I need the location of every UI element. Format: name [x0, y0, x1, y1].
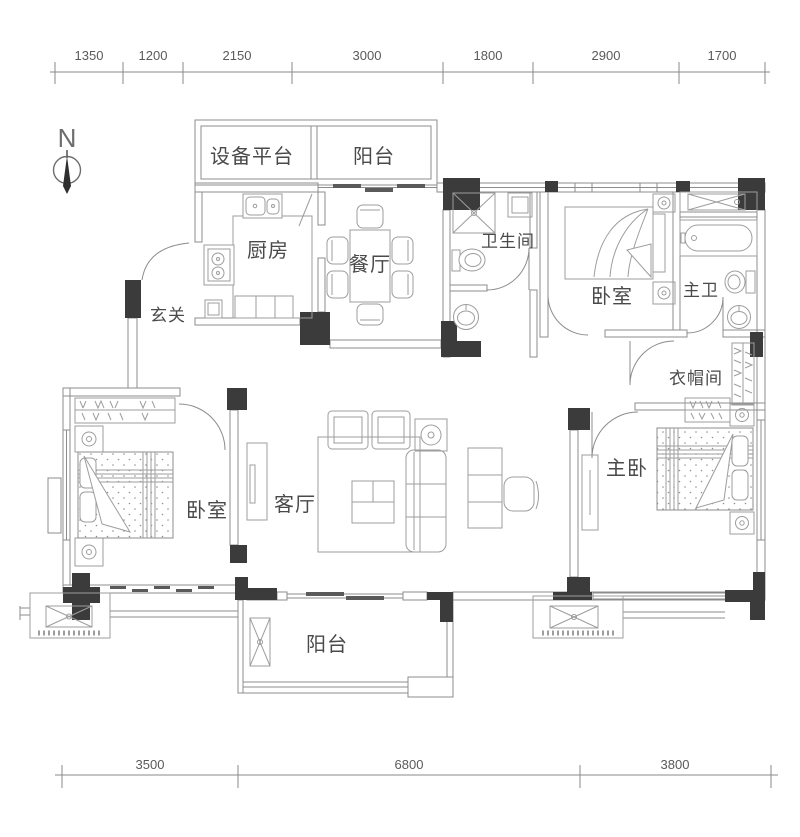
bedroom-left-furniture — [75, 398, 175, 566]
pillow — [732, 436, 748, 466]
washbasin — [728, 306, 751, 329]
bedroom-right-door-arc — [548, 295, 588, 335]
master-bath-door-arc — [687, 297, 723, 333]
nightstand — [75, 538, 103, 566]
entry-door-arc — [142, 243, 189, 280]
bed-right-top — [565, 207, 653, 279]
dim-top-3: 2150 — [223, 48, 252, 63]
bathroom-door-arc — [487, 248, 529, 290]
north-compass: N — [54, 123, 81, 194]
desk — [468, 448, 502, 528]
dining-chair — [357, 304, 383, 325]
label-master-bedroom: 主卧 — [606, 457, 648, 480]
living-room-furniture — [247, 411, 539, 552]
dining-chair — [392, 271, 413, 298]
sofa — [406, 450, 446, 552]
tv-icon — [250, 465, 255, 503]
structural-columns — [63, 178, 765, 622]
cloakroom-door-arc — [630, 341, 674, 385]
floor-plan-drawing: 1350 1200 2150 3000 1800 2900 1700 3500 … — [0, 0, 800, 837]
master-bedroom-door-arc — [592, 412, 638, 458]
nightstand — [75, 426, 103, 452]
nightstand — [653, 282, 675, 304]
ac-platform-right — [533, 596, 623, 638]
floor-plan: 1350 1200 2150 3000 1800 2900 1700 3500 … — [0, 0, 800, 837]
kitchen-sink — [243, 194, 282, 218]
nightstand — [730, 404, 754, 426]
bed-master — [657, 428, 753, 510]
label-equipment-platform: 设备平台 — [210, 145, 294, 168]
toilet — [725, 271, 755, 293]
dining-chair — [357, 205, 383, 228]
label-entry: 玄关 — [150, 306, 186, 325]
rug — [318, 437, 420, 552]
kitchen-counter — [235, 296, 293, 318]
dining-chair — [327, 237, 348, 264]
dim-top-4: 3000 — [353, 48, 382, 63]
desk-chair — [504, 477, 534, 511]
bathtub — [680, 220, 757, 256]
label-master-bathroom: 主卫 — [683, 281, 719, 300]
dining-chair — [392, 237, 413, 264]
label-cloakroom: 衣帽间 — [669, 369, 723, 388]
north-label: N — [58, 123, 77, 153]
pillow — [732, 470, 748, 500]
dim-bottom-3: 3800 — [661, 757, 690, 772]
dimension-line-top: 1350 1200 2150 3000 1800 2900 1700 — [50, 48, 770, 84]
label-bathroom: 卫生间 — [481, 232, 535, 251]
compass-needle-icon — [63, 156, 71, 194]
toilet — [452, 249, 485, 271]
dining-chair — [327, 271, 348, 298]
label-bedroom-left: 卧室 — [186, 499, 228, 522]
label-dining-room: 餐厅 — [349, 253, 391, 276]
bathroom-fixtures — [452, 193, 532, 330]
wardrobe — [75, 398, 175, 423]
dimension-line-bottom: 3500 6800 3800 — [55, 757, 778, 788]
washing-machine — [250, 618, 270, 666]
bed-left — [78, 452, 173, 538]
dim-bottom-1: 3500 — [136, 757, 165, 772]
pillow — [80, 492, 96, 522]
nightstand — [730, 512, 754, 534]
master-bath-fixtures — [680, 192, 757, 329]
balcony-bottom-fixtures — [250, 618, 270, 666]
label-bedroom-right: 卧室 — [591, 285, 633, 308]
washbasin — [454, 305, 479, 330]
dim-top-7: 1700 — [708, 48, 737, 63]
dim-top-5: 1800 — [474, 48, 503, 63]
label-balcony-bottom: 阳台 — [306, 633, 348, 656]
wardrobe-horizontal — [685, 398, 730, 422]
dim-bottom-2: 6800 — [395, 757, 424, 772]
dim-top-6: 2900 — [592, 48, 621, 63]
dim-top-2: 1200 — [139, 48, 168, 63]
bedroom-left-door-arc — [179, 404, 225, 450]
label-balcony-top: 阳台 — [353, 145, 395, 168]
dim-top-1: 1350 — [75, 48, 104, 63]
label-living-room: 客厅 — [274, 493, 316, 516]
ac-platform-top — [680, 192, 757, 212]
stove — [204, 245, 234, 285]
label-kitchen: 厨房 — [247, 239, 289, 262]
headboard — [653, 214, 665, 272]
